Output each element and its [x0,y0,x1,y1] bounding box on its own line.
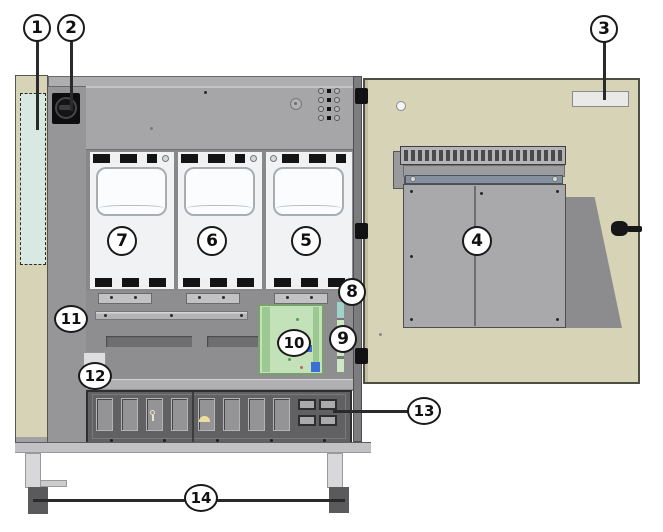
enclosure-bar-screw [410,176,416,182]
enclosure-divider [474,186,476,326]
panel-screw [204,91,207,94]
module-center-screw [250,155,257,162]
module-bracket [274,293,328,304]
mid-ledge [86,379,353,389]
hinge-middle [355,223,368,239]
vertical-strip-upper [337,302,344,318]
door-lock-stem [627,226,642,232]
door-label [572,91,629,107]
panel-screw [150,127,153,130]
door-hole [396,101,406,111]
terminal-slot [171,398,188,431]
module-right-bottom-vents [274,278,346,287]
cable-slot [106,336,192,347]
gland-half-disc [199,416,210,422]
circuit-board-edge-left [262,307,270,372]
callout-5: 5 [291,226,321,256]
key-stem [152,415,154,421]
module-right-handle-lip [276,205,341,213]
hinge-bottom [355,348,368,364]
hinge-top [355,88,368,104]
module-left-bottom-vents [95,278,167,287]
module-bracket [186,293,240,304]
callout-13: 13 [407,397,441,425]
leader-line-2 [70,41,73,111]
module-left-top-vents [93,154,157,163]
callout-3: 3 [590,15,618,43]
terminal-slot [96,398,113,431]
callout-14: 14 [184,484,218,512]
callout-7: 7 [107,226,137,256]
left-leg [25,453,41,488]
module-center-top-vents [181,154,245,163]
right-leg [327,453,343,488]
terminal-slot [146,398,163,431]
callout-6: 6 [197,226,227,256]
leader-line-3 [603,42,606,100]
module-right-top-vents [282,154,346,163]
module-bracket [98,293,152,304]
terminal-slot [121,398,138,431]
vertical-strip-seg [337,359,344,372]
enclosure-bar-screw [552,176,558,182]
module-left-screw [162,155,169,162]
terminal-slot [273,398,290,431]
terminal-slot [198,398,215,431]
callout-2: 2 [57,14,85,42]
door-lock-icon[interactable] [611,221,628,236]
callout-1: 1 [23,14,51,42]
leader-line-13 [333,410,409,413]
bottom-rail [15,442,371,453]
module-left-handle-lip [99,205,164,213]
terminal-connector[interactable] [298,399,316,410]
door-mounted-enclosure [403,184,566,328]
module-center-bottom-vents [183,278,255,287]
side-panel-highlight-region [20,93,46,265]
module-center-handle-lip [187,205,252,213]
callout-9: 9 [329,325,357,353]
diagram-canvas: 1 2 3 4 5 6 7 8 9 10 11 12 13 14 [0,0,663,532]
control-top-panel [86,86,353,150]
enclosure-vent-slots [404,150,562,161]
terminal-connector[interactable] [319,399,337,410]
terminal-connector[interactable] [298,415,316,426]
terminal-slot [248,398,265,431]
door-screw [379,333,382,336]
callout-8: 8 [338,278,366,306]
cabinet-right-wall [353,76,362,442]
cable-slot [207,336,259,347]
terminal-connector[interactable] [319,415,337,426]
pcb-component-blue [311,362,320,372]
callout-11: 11 [54,305,88,333]
left-leg-flange [40,480,67,487]
terminal-panel-divider [192,392,194,444]
buzzer-center [294,102,297,105]
enclosure-blue-bar [405,175,563,184]
callout-12: 12 [78,362,112,390]
cabinet-left-column [48,87,86,442]
leader-line-1 [36,41,39,130]
callout-10: 10 [277,329,311,357]
module-right-screw [270,155,277,162]
callout-4: 4 [462,226,492,256]
terminal-slot [223,398,240,431]
